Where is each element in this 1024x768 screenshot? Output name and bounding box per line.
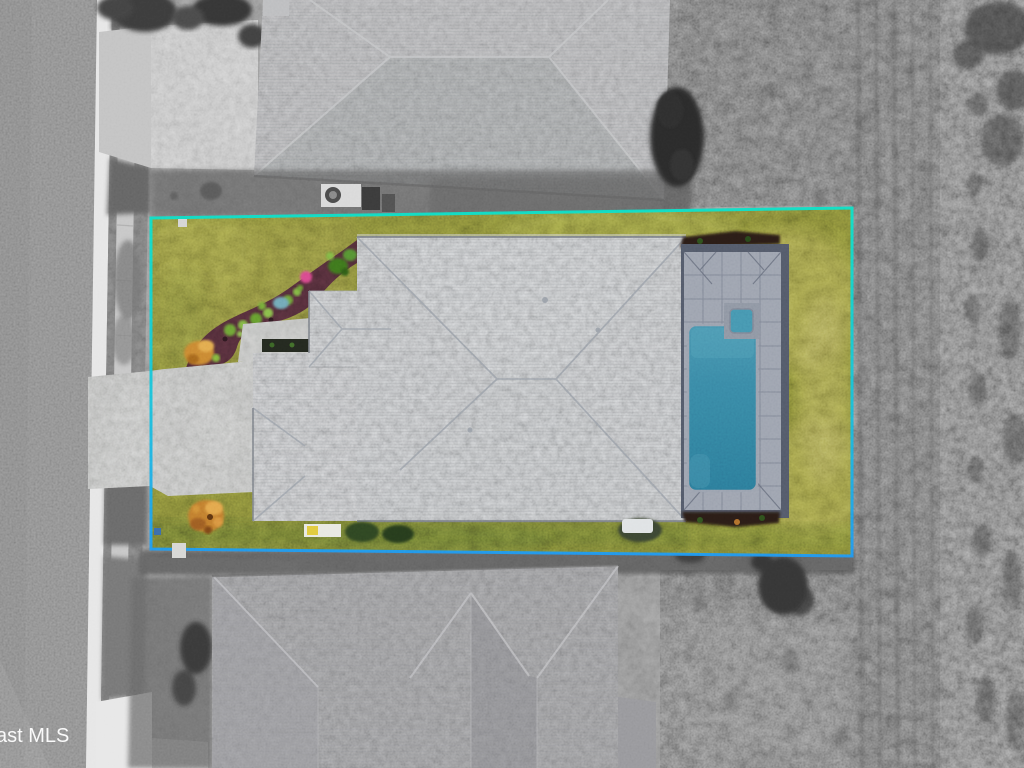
svg-text:ast MLS: ast MLS bbox=[0, 725, 69, 747]
